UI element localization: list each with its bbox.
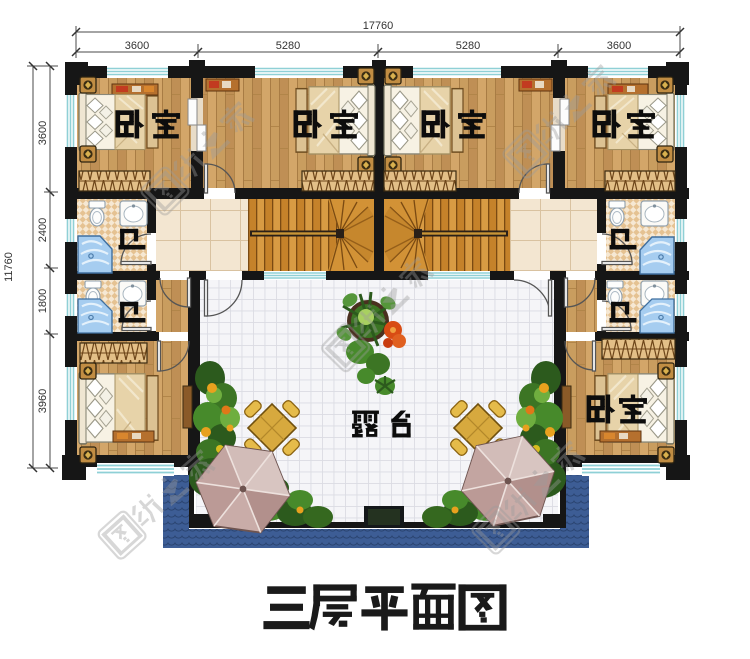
svg-text:3600: 3600 (125, 40, 149, 52)
svg-text:17760: 17760 (363, 20, 394, 32)
svg-text:3600: 3600 (607, 40, 631, 52)
svg-text:3960: 3960 (37, 389, 49, 413)
svg-text:1800: 1800 (37, 289, 49, 313)
svg-text:3600: 3600 (37, 121, 49, 145)
svg-text:5280: 5280 (276, 40, 300, 52)
svg-text:5280: 5280 (456, 40, 480, 52)
svg-text:11760: 11760 (3, 252, 15, 282)
svg-text:2400: 2400 (37, 218, 49, 242)
